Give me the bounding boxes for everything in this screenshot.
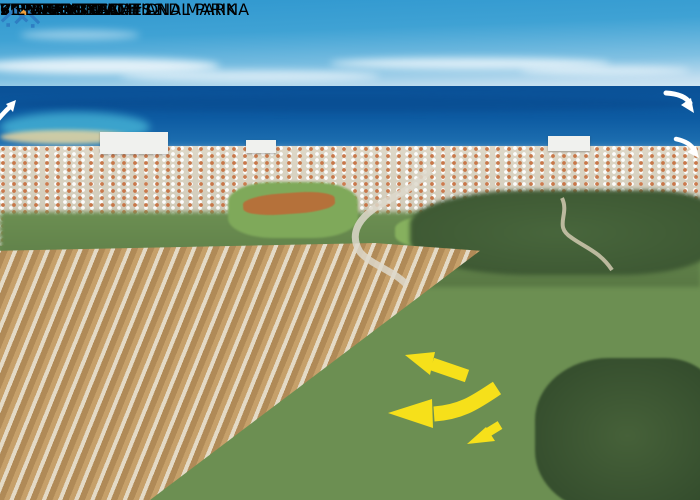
villa-pointer-arrow-main-icon [388, 388, 497, 428]
logo-brand-text: VILLASCYPRUS [0, 0, 118, 19]
cape-greco-arrow-icon [666, 93, 694, 113]
villa-pointer-arrow-upper-icon [405, 352, 467, 376]
kalamies-arrow-icon [0, 100, 16, 122]
arrows-layer [0, 0, 700, 500]
aerial-promo-image: KALAMIES BEACH AND MARINA PERNERA TOWN S… [0, 0, 700, 500]
villa-pointer-arrow-small-icon [467, 425, 500, 444]
protaras-arrow-icon [676, 139, 699, 158]
